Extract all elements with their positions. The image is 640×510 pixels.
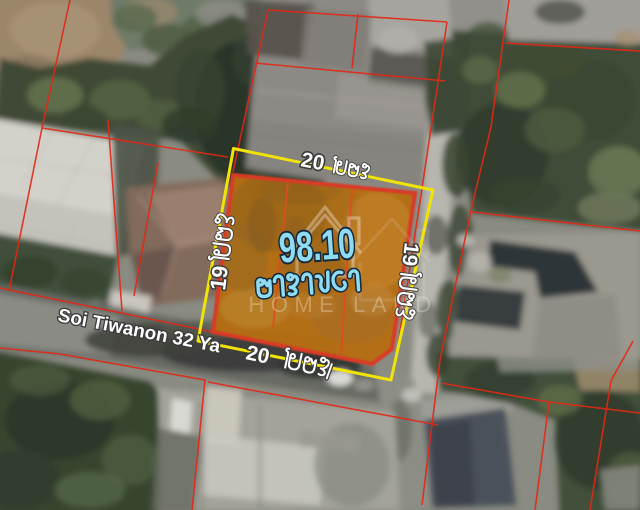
- svg-text:20: 20: [299, 148, 326, 175]
- svg-text:98.10: 98.10: [277, 219, 356, 271]
- svg-text:19: 19: [397, 241, 423, 267]
- svg-text:20: 20: [244, 341, 272, 368]
- svg-text:19: 19: [205, 264, 233, 291]
